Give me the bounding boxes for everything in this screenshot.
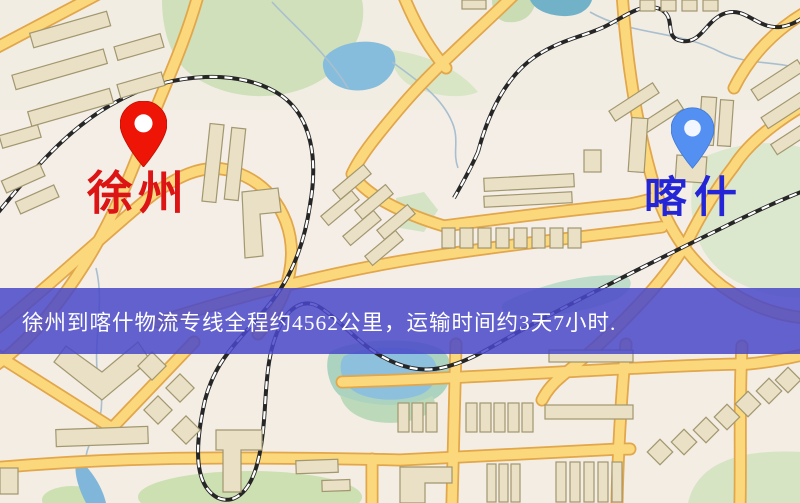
origin-city-label: 徐州 xyxy=(87,171,189,217)
destination-pin-icon xyxy=(671,106,714,170)
origin-pin-icon xyxy=(120,101,167,167)
route-info-text: 徐州到喀什物流专线全程约4562公里，运输时间约3天7小时. xyxy=(0,306,616,337)
route-info-banner: 徐州到喀什物流专线全程约4562公里，运输时间约3天7小时. xyxy=(0,288,800,354)
map-graphic xyxy=(0,0,800,503)
destination-city-label: 喀什 xyxy=(644,177,744,220)
map-canvas: 徐州 喀什 徐州到喀什物流专线全程约4562公里，运输时间约3天7小时. xyxy=(0,0,800,503)
